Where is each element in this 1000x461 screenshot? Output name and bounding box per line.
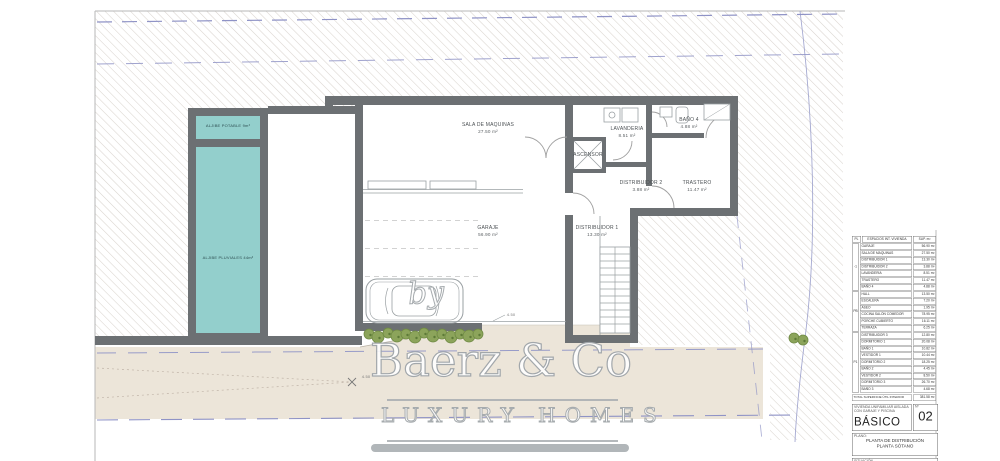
- label-aljibe-potable: ALJIBE POTABLE 9m³: [193, 123, 263, 128]
- site-hatch-top: [95, 11, 843, 97]
- room-name: SALA DE MAQUINAS: [860, 250, 912, 256]
- floor-label: P1: [852, 332, 859, 392]
- label-garaje: GARAJE 56.90 m²: [448, 225, 528, 238]
- table-row: GARAJE56.90 m²: [860, 244, 936, 250]
- room-area: 6.25 m²: [913, 325, 936, 331]
- area-table-total: TOTAL SUPERFICIE ÚTIL INTERIOR 381.58 m²: [852, 395, 936, 401]
- label-bano4: BAÑO 4 4.88 m²: [659, 117, 719, 130]
- room-area: 4.68 m²: [913, 386, 936, 392]
- room-name: PORCHE CUBIERTO: [860, 318, 912, 324]
- room-name: ESCALERA: [860, 298, 912, 304]
- room-area: 7.20 m²: [913, 298, 936, 304]
- table-row: LAVANDERIA8.51 m²: [860, 271, 936, 277]
- header-area: SUP. m²: [913, 236, 936, 243]
- table-row: DORMITORIO 218.25 m²: [860, 359, 936, 365]
- room-name: VESTIDOR 1: [860, 353, 912, 359]
- table-row: TRASTERO11.47 m²: [860, 277, 936, 283]
- area-table-header: PL ESPACIOS INT. VIVIENDA SUP. m²: [852, 236, 936, 243]
- area-table-groups: -1GARAJE56.90 m²SALA DE MAQUINAS27.50 m²…: [852, 244, 936, 393]
- aljibe-pluviales-water: [196, 147, 260, 333]
- room-area: 4.45 m²: [913, 366, 936, 372]
- table-row: VESTIDOR 110.44 m²: [860, 353, 936, 359]
- total-value: 381.58 m²: [913, 395, 936, 401]
- room-area: 13.30 m²: [913, 257, 936, 263]
- total-label: TOTAL SUPERFICIE ÚTIL INTERIOR: [852, 395, 912, 401]
- room-area: 1.95 m²: [913, 305, 936, 311]
- room-name: DORMITORIO 2: [860, 359, 912, 365]
- room-name: HALL: [860, 291, 912, 297]
- room-name: GARAJE: [860, 244, 912, 250]
- watermark-rule-top: [387, 399, 618, 401]
- label-lavanderia: LAVANDERIA 8.51 m²: [597, 126, 657, 139]
- room-area: 27.50 m²: [913, 250, 936, 256]
- room-area: 4.88 m²: [913, 284, 936, 290]
- table-row: SALA DE MAQUINAS27.50 m²: [860, 250, 936, 256]
- room-area: 3.88 m²: [913, 264, 936, 270]
- room-area: 56.90 m²: [913, 244, 936, 250]
- table-group: -1GARAJE56.90 m²SALA DE MAQUINAS27.50 m²…: [852, 244, 936, 291]
- room-name: BAÑO 1: [860, 346, 912, 352]
- room-name: VESTIDOR 2: [860, 373, 912, 379]
- table-row: BAÑO 110.82 m²: [860, 346, 936, 352]
- site-hatch-left: [95, 97, 188, 336]
- table-row: HALL13.50 m²: [860, 291, 936, 297]
- watermark-brand: Baerz & Co: [368, 334, 634, 387]
- table-row: VESTIDOR 28.50 m²: [860, 373, 936, 379]
- room-name: DISTRIBUIDOR 3: [860, 332, 912, 338]
- sheet-number: 02: [915, 409, 936, 425]
- watermark-rule-bottom: [387, 440, 618, 442]
- room-name: COCINA SALÓN COMEDOR: [860, 312, 912, 318]
- label-dim-garage-door: 4.50: [496, 312, 526, 317]
- label-sala-maquinas: SALA DE MAQUINAS 27.50 m²: [448, 122, 528, 135]
- table-row: DORMITORIO 120.08 m²: [860, 339, 936, 345]
- floor-plan-sheet: ALJIBE POTABLE 9m³ ALJIBE PLUVIALES 44m³…: [0, 0, 1000, 461]
- header-name: ESPACIOS INT. VIVIENDA: [862, 236, 912, 243]
- table-row: DISTRIBUIDOR 113.30 m²: [860, 257, 936, 263]
- header-floor: PL: [852, 236, 861, 243]
- room-area: 10.44 m²: [913, 353, 936, 359]
- room-name: TERRAZA: [860, 325, 912, 331]
- table-row: ESCALERA7.20 m²: [860, 298, 936, 304]
- room-area: 8.50 m²: [913, 373, 936, 379]
- table-row: DISTRIBUIDOR 312.80 m²: [860, 332, 936, 338]
- room-name: LAVANDERIA: [860, 271, 912, 277]
- watermark-tagline: LUXURY HOMES: [381, 403, 625, 427]
- table-row: PORCHE CUBIERTO16.11 m²: [860, 318, 936, 324]
- plano-cell: PLANO: PLANTA DE DISTRIBUCIÓN PLANTA SÓT…: [852, 433, 938, 456]
- table-row: ASEO1.95 m²: [860, 305, 936, 311]
- interior-lines: [363, 181, 600, 335]
- room-area: 13.50 m²: [913, 291, 936, 297]
- room-area: 10.82 m²: [913, 346, 936, 352]
- room-name: TRASTERO: [860, 277, 912, 283]
- room-name: DORMITORIO 1: [860, 339, 912, 345]
- table-row: DISTRIBUIDOR 23.88 m²: [860, 264, 936, 270]
- phase-title: BÁSICO: [854, 415, 910, 429]
- table-row: BAÑO 44.88 m²: [860, 284, 936, 290]
- table-row: COCINA SALÓN COMEDOR78.95 m²: [860, 312, 936, 318]
- project-line2: CON GARAJE Y PISCINA: [854, 410, 910, 414]
- plano-line2: PLANTA SÓTANO: [854, 444, 936, 450]
- floor-label: -1: [852, 244, 859, 291]
- room-area: 16.11 m²: [913, 318, 936, 324]
- sheet-number-cell: Nº 02: [913, 404, 938, 431]
- room-area: 11.47 m²: [913, 277, 936, 283]
- project-cell: VIVIENDA UNIFAMILIAR AISLADA CON GARAJE …: [852, 404, 912, 431]
- floor-label: PB: [852, 291, 859, 331]
- room-area: 8.51 m²: [913, 271, 936, 277]
- room-name: DISTRIBUIDOR 2: [860, 264, 912, 270]
- table-group: P1DISTRIBUIDOR 312.80 m²DORMITORIO 120.0…: [852, 332, 936, 392]
- room-name: BAÑO 4: [860, 284, 912, 290]
- label-trastero: TRASTERO 11.47 m²: [667, 180, 727, 193]
- table-row: DORMITORIO 326.70 m²: [860, 380, 936, 386]
- room-name: ASEO: [860, 305, 912, 311]
- room-area: 20.08 m²: [913, 339, 936, 345]
- label-distribuidor2: DISTRIBUIDOR 2 3.88 m²: [611, 180, 671, 193]
- label-ascensor: ASCENSOR: [558, 152, 618, 159]
- watermark-bar: [371, 444, 629, 452]
- title-block: VIVIENDA UNIFAMILIAR AISLADA CON GARAJE …: [852, 404, 938, 461]
- watermark-by: by: [407, 275, 445, 312]
- room-name: DISTRIBUIDOR 1: [860, 257, 912, 263]
- staircase: [600, 247, 630, 333]
- table-group: PBHALL13.50 m²ESCALERA7.20 m²ASEO1.95 m²…: [852, 291, 936, 331]
- label-aljibe-pluviales: ALJIBE PLUVIALES 44m³: [193, 255, 263, 260]
- room-area: 78.95 m²: [913, 312, 936, 318]
- table-row: BAÑO 24.45 m²: [860, 366, 936, 372]
- room-area: 12.80 m²: [913, 332, 936, 338]
- room-name: DORMITORIO 3: [860, 380, 912, 386]
- room-name: BAÑO 3: [860, 386, 912, 392]
- table-row: BAÑO 34.68 m²: [860, 386, 936, 392]
- room-name: BAÑO 2: [860, 366, 912, 372]
- room-area: 26.70 m²: [913, 380, 936, 386]
- room-area: 18.25 m²: [913, 359, 936, 365]
- label-distribuidor1: DISTRIBUIDOR 1 13.30 m²: [557, 225, 637, 238]
- table-row: TERRAZA6.25 m²: [860, 325, 936, 331]
